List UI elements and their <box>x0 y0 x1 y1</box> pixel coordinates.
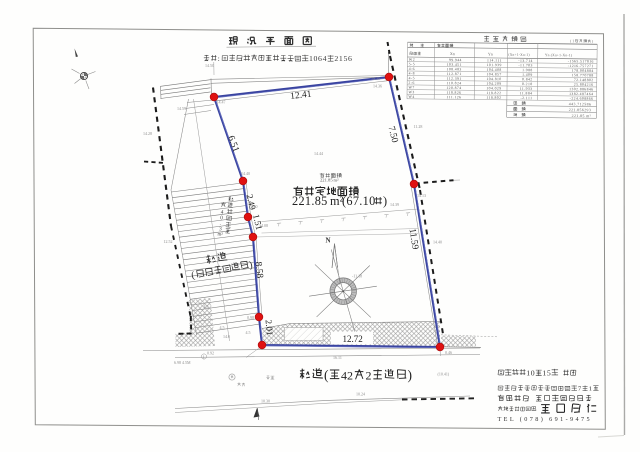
svg-text:14.0: 14.0 <box>223 334 230 339</box>
svg-text:104.029: 104.029 <box>486 86 501 90</box>
svg-text:111.126: 111.126 <box>447 95 462 99</box>
svg-text:14.40: 14.40 <box>433 240 442 245</box>
svg-text:104.857: 104.857 <box>486 72 501 76</box>
svg-text:(10.41): (10.41) <box>438 372 450 377</box>
svg-text:14.47: 14.47 <box>217 100 226 105</box>
svg-text:12.52: 12.52 <box>164 239 173 244</box>
svg-text::: : <box>218 54 220 63</box>
svg-text:1: 1 <box>542 368 546 377</box>
svg-text:14.36: 14.36 <box>373 84 382 89</box>
svg-text:1: 1 <box>203 354 205 359</box>
svg-text:-13.714: -13.714 <box>518 59 533 63</box>
svg-text:-1565.517816: -1565.517816 <box>568 59 594 63</box>
svg-text:4-6: 4-6 <box>409 67 415 71</box>
svg-text:221.85: 221.85 <box>292 194 328 208</box>
svg-text:158.770788: 158.770788 <box>572 73 594 77</box>
svg-text:12.40: 12.40 <box>249 204 258 209</box>
svg-text:178.004884: 178.004884 <box>572 69 594 73</box>
svg-text:14.13: 14.13 <box>417 193 426 198</box>
svg-text:4: 4 <box>323 54 327 63</box>
svg-text:W3: W3 <box>408 90 414 94</box>
svg-text:14.50: 14.50 <box>205 63 214 68</box>
svg-text:0.218: 0.218 <box>522 82 533 86</box>
svg-text:72.148802: 72.148802 <box>574 78 594 82</box>
svg-text:14.44: 14.44 <box>314 151 323 156</box>
svg-text:10.30: 10.30 <box>261 399 270 404</box>
svg-text:(Xn+1-Xn-1): (Xn+1-Xn-1) <box>508 53 530 57</box>
svg-text:0: 0 <box>314 54 318 63</box>
svg-text:120.874: 120.874 <box>446 86 461 90</box>
svg-text:0.842: 0.842 <box>522 77 533 81</box>
svg-text:1: 1 <box>309 54 313 63</box>
svg-text:4.5: 4.5 <box>204 304 209 309</box>
svg-text:25.804216: 25.804216 <box>574 83 594 87</box>
svg-text:W4: W4 <box>408 95 414 99</box>
svg-text:221.85 m²: 221.85 m² <box>572 114 592 118</box>
svg-text:42: 42 <box>341 369 353 383</box>
svg-text:0.98: 0.98 <box>247 315 254 320</box>
svg-text:(: ( <box>324 368 329 383</box>
svg-text:2: 2 <box>366 369 372 383</box>
svg-text:-11.703: -11.703 <box>518 63 532 67</box>
svg-text:104.810: 104.810 <box>486 77 501 81</box>
svg-text:-11.18: -11.18 <box>352 274 362 279</box>
svg-text:103.451: 103.451 <box>447 63 462 67</box>
svg-text:0: 0 <box>531 368 535 377</box>
svg-text:108.483: 108.483 <box>447 67 462 71</box>
svg-text:112.871: 112.871 <box>447 72 462 76</box>
svg-text:1: 1 <box>589 386 592 393</box>
svg-text:5: 5 <box>344 54 348 63</box>
svg-text:118.826: 118.826 <box>446 91 461 95</box>
svg-text:14.28: 14.28 <box>143 131 152 136</box>
svg-text:1.988: 1.988 <box>522 68 533 72</box>
svg-text:1.409: 1.409 <box>522 73 533 77</box>
svg-text:1: 1 <box>572 38 574 43</box>
svg-text:Yn: Yn <box>488 51 493 56</box>
svg-text:12.72: 12.72 <box>343 334 363 344</box>
svg-text:110.824: 110.824 <box>447 81 462 85</box>
svg-text:1: 1 <box>526 368 530 377</box>
svg-text:104.209: 104.209 <box>486 82 501 86</box>
svg-text:11.28: 11.28 <box>414 124 423 129</box>
svg-text:2.01: 2.01 <box>264 319 276 336</box>
svg-text:Xn: Xn <box>450 51 455 56</box>
svg-text:1382.487464: 1382.487464 <box>569 92 593 96</box>
svg-text:4-5: 4-5 <box>409 76 415 80</box>
svg-text:): ) <box>383 194 387 208</box>
svg-text:0.46: 0.46 <box>445 350 452 355</box>
svg-text:1: 1 <box>339 54 343 63</box>
svg-text:W2: W2 <box>409 58 415 62</box>
svg-text:221.85: 221.85 <box>320 178 333 183</box>
svg-text:11.884: 11.884 <box>520 91 533 95</box>
svg-text:14.40: 14.40 <box>241 171 250 176</box>
svg-text:16.11: 16.11 <box>333 355 342 360</box>
svg-text:14.59: 14.59 <box>177 106 186 111</box>
svg-text:N: N <box>326 237 331 245</box>
svg-text:14.08: 14.08 <box>259 223 268 228</box>
svg-text:443.712586: 443.712586 <box>569 102 592 106</box>
svg-text:6: 6 <box>318 54 322 63</box>
svg-text:5: 5 <box>547 368 551 377</box>
svg-text:4.5: 4.5 <box>220 325 225 330</box>
svg-text:104.408: 104.408 <box>487 68 502 72</box>
svg-text:10.24: 10.24 <box>356 392 365 397</box>
svg-text:99.944: 99.944 <box>449 58 462 62</box>
svg-text:W7: W7 <box>408 86 414 90</box>
svg-text:221.856293: 221.856293 <box>569 108 592 112</box>
svg-text:): ) <box>408 368 413 383</box>
svg-text:0.92: 0.92 <box>207 351 214 356</box>
svg-text:11.933: 11.933 <box>520 87 533 91</box>
svg-text:m²: m² <box>334 178 340 183</box>
svg-text:6: 6 <box>348 54 352 63</box>
svg-text:Yn.(Xn+1-Xn-1): Yn.(Xn+1-Xn-1) <box>545 53 573 57</box>
svg-text:101.939: 101.939 <box>487 63 502 67</box>
svg-text:-224.608866: -224.608866 <box>570 97 594 101</box>
svg-text:(67.10: (67.10 <box>342 194 376 208</box>
svg-text:112.391: 112.391 <box>447 77 462 81</box>
svg-text:1302.886846: 1302.886846 <box>569 87 593 91</box>
svg-text:5-5: 5-5 <box>409 62 415 66</box>
svg-text:14.39: 14.39 <box>390 202 399 207</box>
svg-text:TEL (078) 691-9475: TEL (078) 691-9475 <box>498 416 593 423</box>
svg-text:2: 2 <box>334 54 338 63</box>
svg-text:4.5: 4.5 <box>246 330 251 335</box>
svg-text:-2.111: -2.111 <box>520 96 532 100</box>
svg-text:114.111: 114.111 <box>487 58 502 62</box>
svg-text:118.822: 118.822 <box>486 91 501 95</box>
svg-text:118.802: 118.802 <box>486 96 501 100</box>
svg-text:2-6: 2-6 <box>409 81 415 85</box>
svg-text:14.25: 14.25 <box>371 76 380 81</box>
svg-text:6.98 4.5M: 6.98 4.5M <box>174 360 191 365</box>
svg-text:-1216.757271: -1216.757271 <box>568 64 594 68</box>
svg-text:8.58: 8.58 <box>253 261 265 279</box>
svg-text:4-8: 4-8 <box>409 72 415 76</box>
